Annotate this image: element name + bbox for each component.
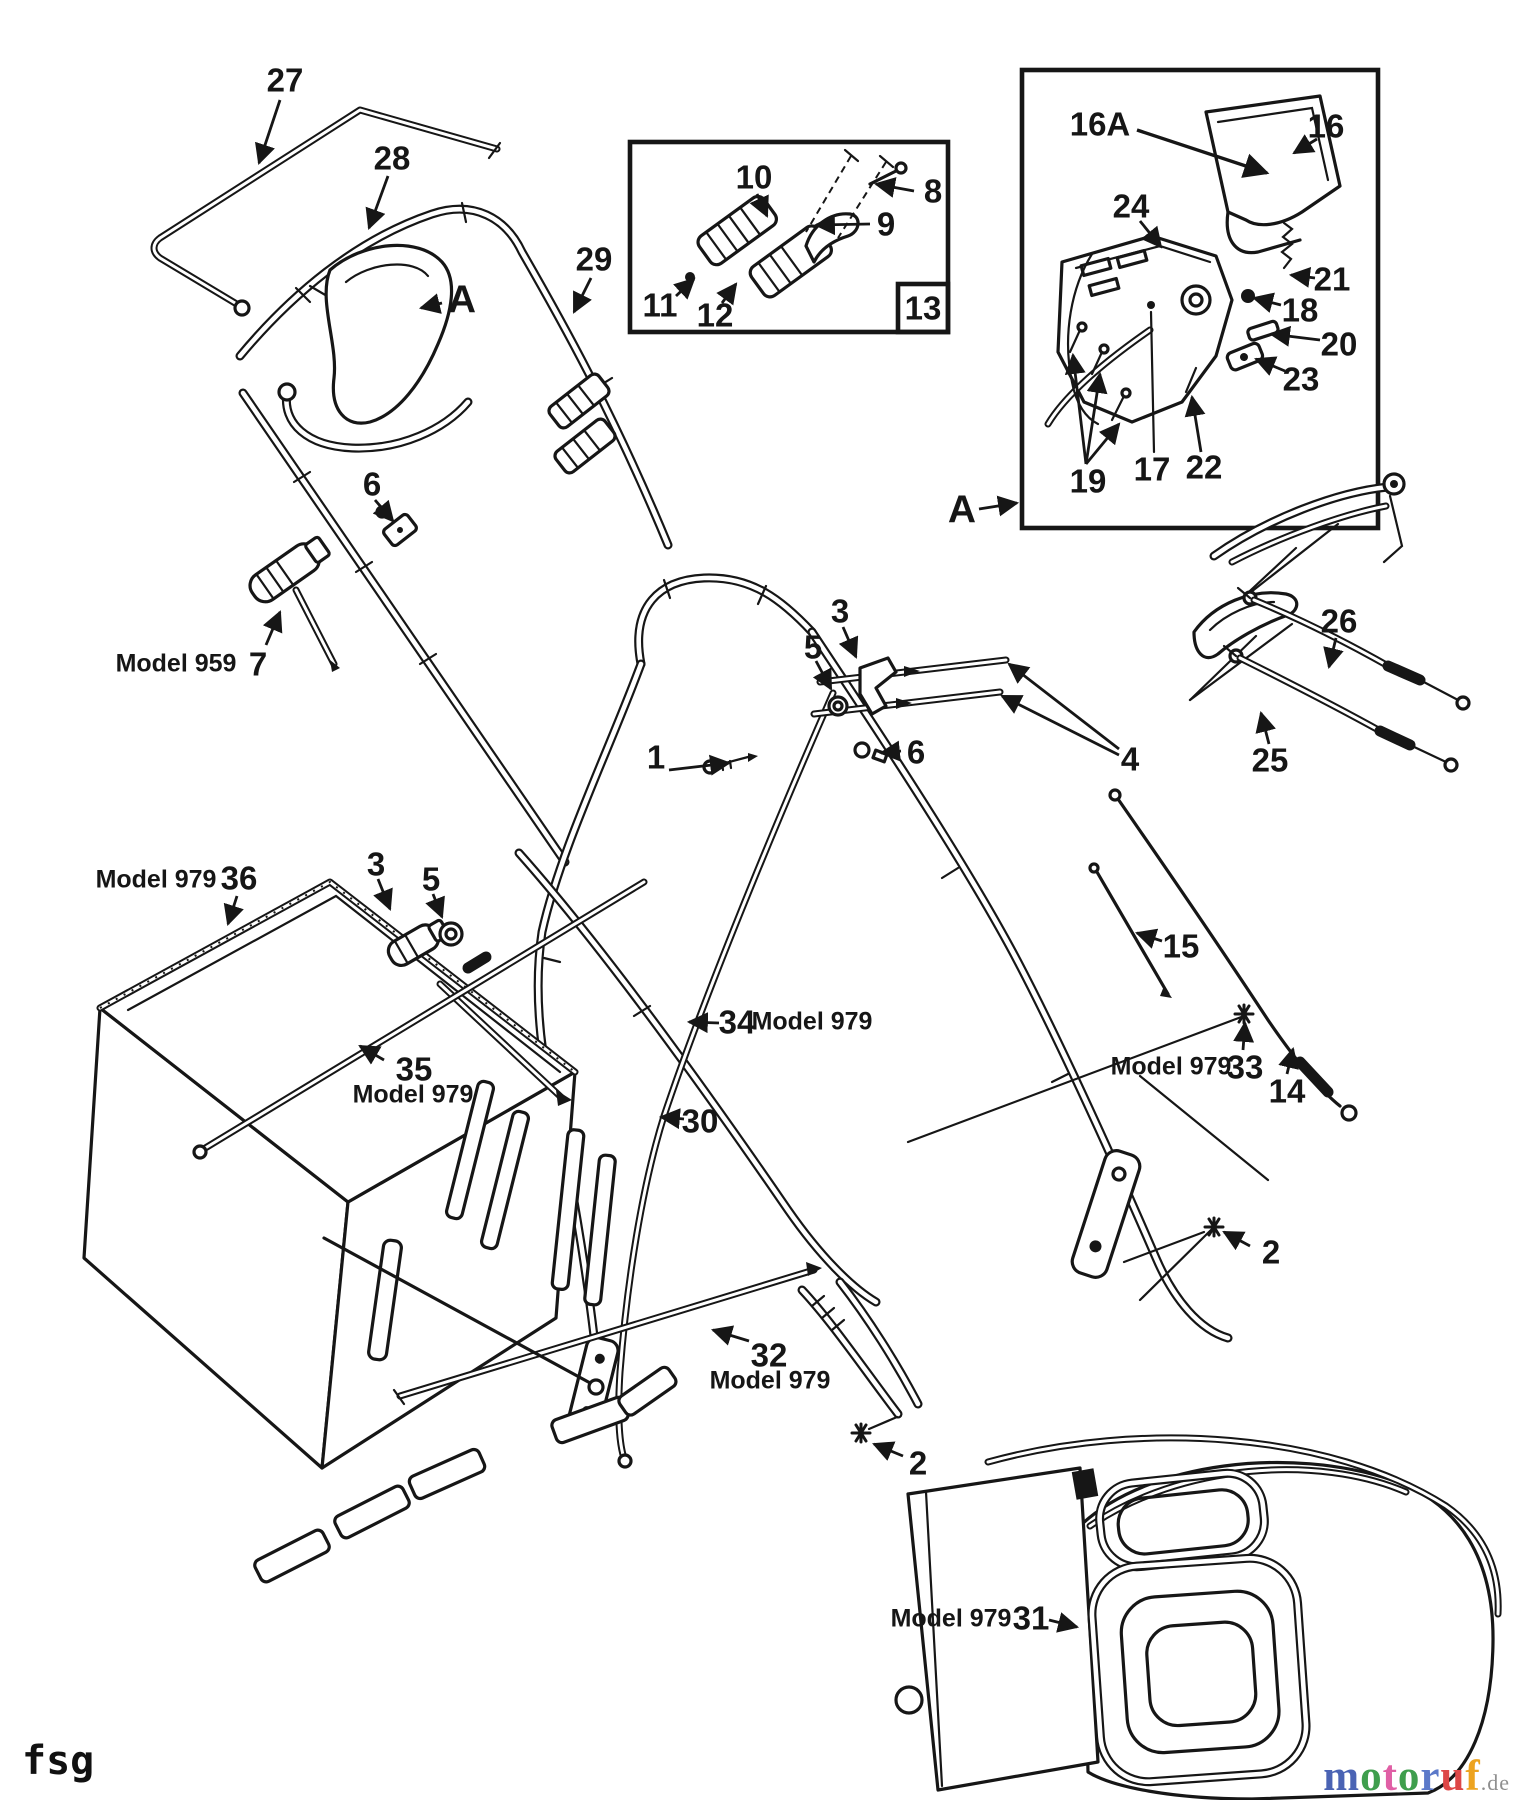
part-label-23: 23: [1283, 363, 1320, 396]
part-label-26: 26: [1321, 605, 1358, 638]
part-label-19: 19: [1070, 465, 1107, 498]
part-label-13: 13: [905, 292, 942, 325]
part-label-6-mid: 6: [907, 736, 925, 769]
part-label-28: 28: [374, 142, 411, 175]
part-label-2-right: 2: [1262, 1236, 1280, 1269]
part-label-21: 21: [1314, 263, 1351, 296]
part-label-a-right: A: [948, 491, 976, 530]
footer-code: fsg: [22, 1738, 94, 1784]
part-label-22: 22: [1186, 451, 1223, 484]
part-label-5-upper: 5: [804, 631, 822, 664]
part-label-model-979-34: Model 979: [752, 1010, 873, 1035]
part-label-33: 33: [1227, 1051, 1264, 1084]
part-label-17: 17: [1134, 453, 1171, 486]
part-label-34: 34: [719, 1006, 756, 1039]
part-label-11: 11: [643, 289, 678, 322]
part-label-18: 18: [1282, 294, 1319, 327]
part-label-model-979-31: Model 979: [891, 1607, 1012, 1632]
part-label-31: 31: [1013, 1602, 1050, 1635]
part-label-8: 8: [924, 175, 942, 208]
part-label-12: 12: [697, 299, 734, 332]
part-label-model-979-33: Model 979: [1111, 1055, 1232, 1080]
part-label-a-left: A: [448, 281, 476, 320]
part-label-3-left: 3: [367, 848, 385, 881]
part-label-model-979-35: Model 979: [353, 1083, 474, 1108]
part-label-14: 14: [1269, 1075, 1306, 1108]
part-label-16a: 16A: [1070, 108, 1131, 141]
motoruf-logo-letters: motoruf: [1323, 1753, 1481, 1800]
part-label-16: 16: [1308, 110, 1345, 143]
part-label-6-upper: 6: [363, 468, 381, 501]
motoruf-logo[interactable]: motoruf.de: [1323, 1752, 1510, 1800]
part-label-29: 29: [576, 243, 613, 276]
part-label-25: 25: [1252, 744, 1289, 777]
part-labels-layer: 2728A29108911121316A162421182023191722A6…: [0, 0, 1516, 1800]
motoruf-logo-suffix: .de: [1481, 1770, 1510, 1795]
part-label-7: 7: [249, 648, 267, 681]
part-label-model-979-36: Model 979: [96, 868, 217, 893]
part-label-36: 36: [221, 862, 258, 895]
part-label-model-959: Model 959: [116, 652, 237, 677]
part-label-1: 1: [647, 741, 665, 774]
part-label-15: 15: [1163, 930, 1200, 963]
part-label-2-bottom: 2: [909, 1447, 927, 1480]
part-label-5-left: 5: [422, 863, 440, 896]
part-label-3-upper: 3: [831, 595, 849, 628]
part-label-model-979-32: Model 979: [710, 1369, 831, 1394]
parts-diagram-page: 2728A29108911121316A162421182023191722A6…: [0, 0, 1516, 1800]
part-label-9: 9: [877, 208, 895, 241]
part-label-24: 24: [1113, 190, 1150, 223]
part-label-4: 4: [1121, 743, 1139, 776]
part-label-30: 30: [682, 1105, 719, 1138]
part-label-20: 20: [1321, 328, 1358, 361]
part-label-10: 10: [736, 161, 773, 194]
part-label-27: 27: [267, 64, 304, 97]
